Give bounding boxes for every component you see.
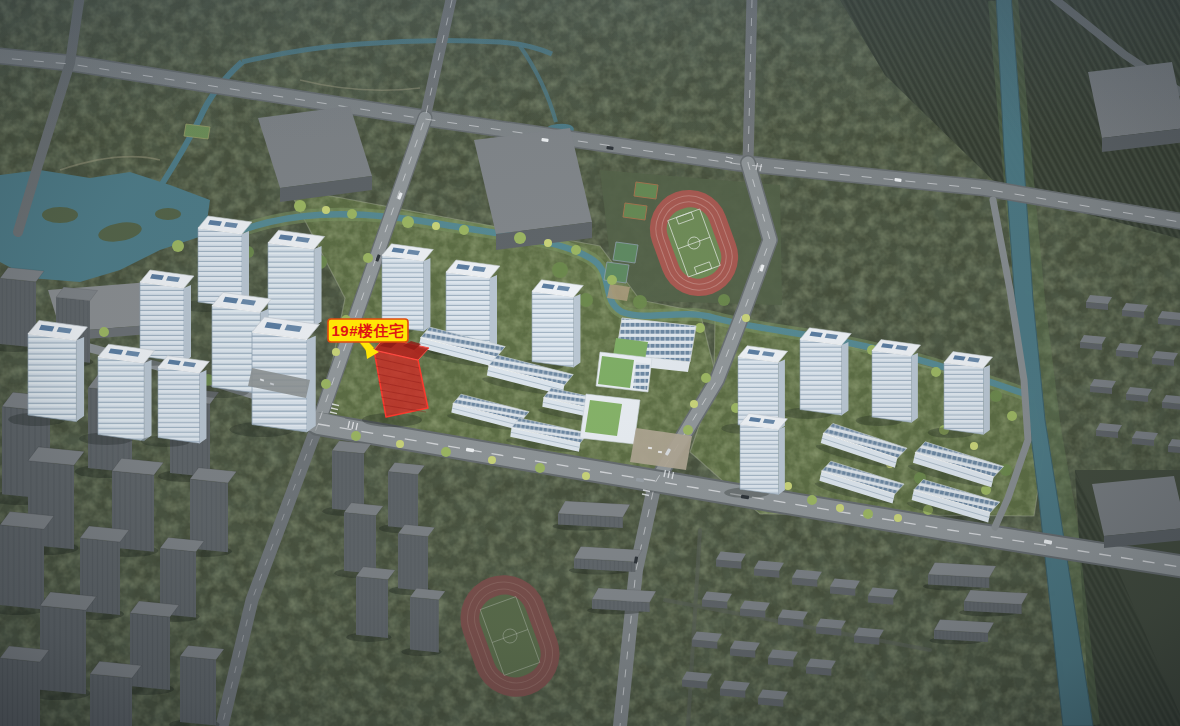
vignette — [0, 0, 1180, 726]
aerial-rendering: 19#楼住宅 — [0, 0, 1180, 726]
building-label-text: 19#楼住宅 — [331, 322, 404, 339]
masterplan-scene: 19#楼住宅 — [0, 0, 1180, 726]
